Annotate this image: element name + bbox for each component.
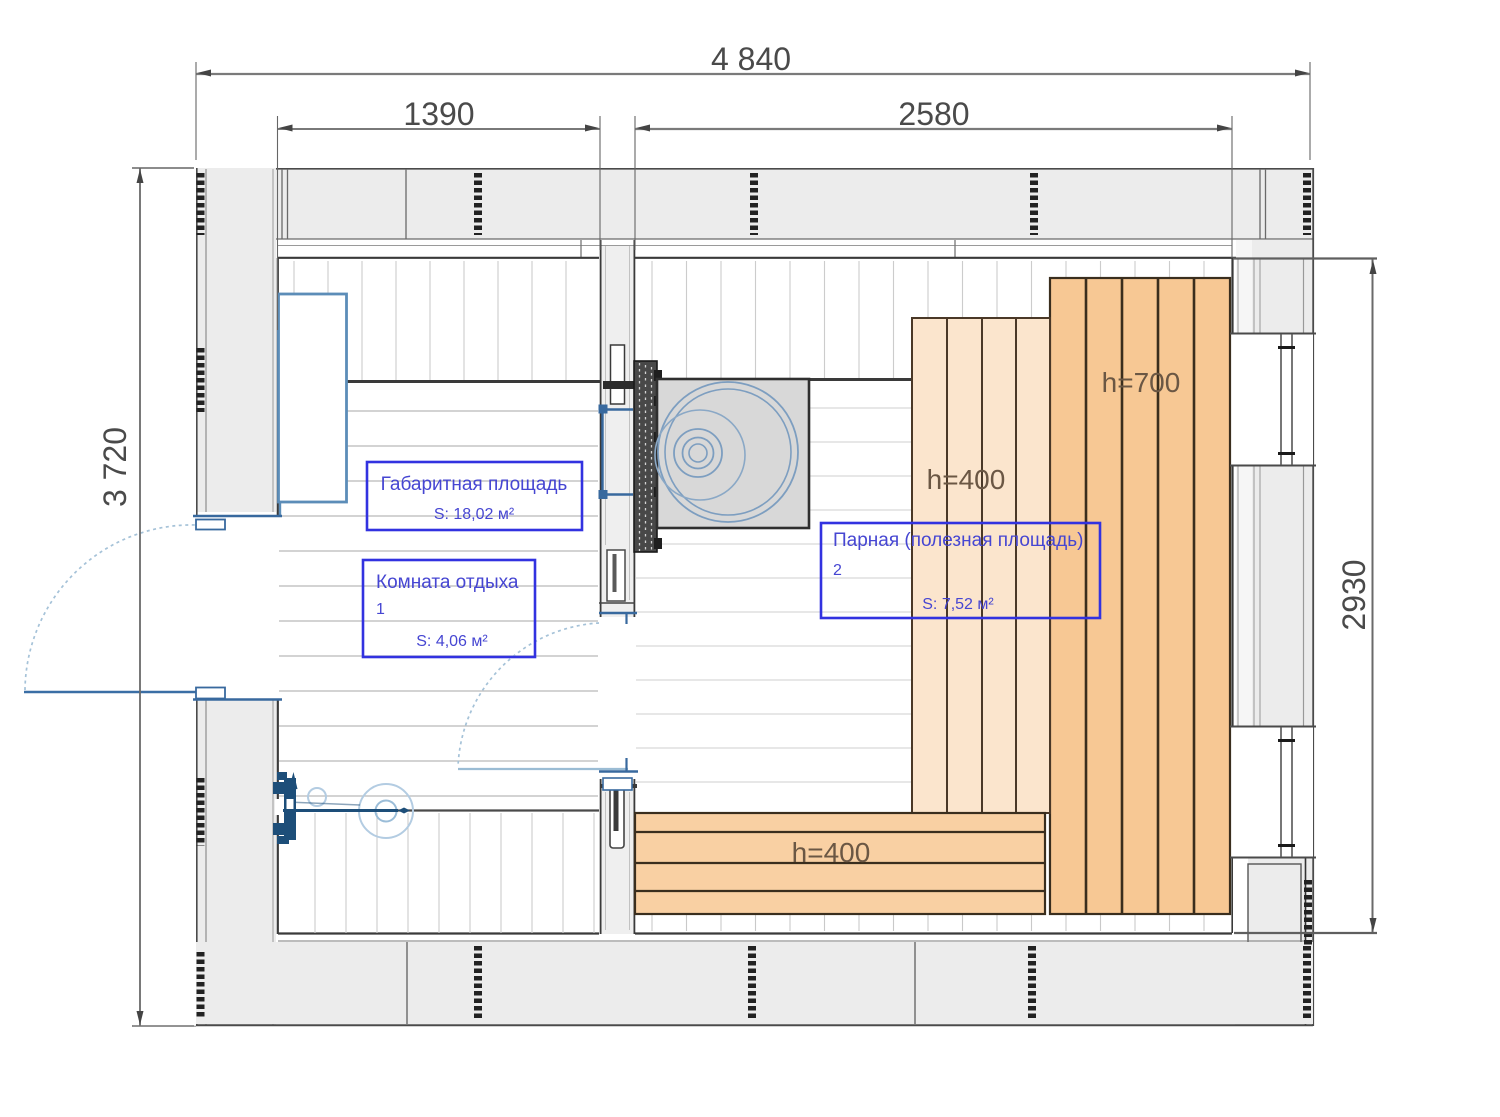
svg-text:2930: 2930: [1336, 559, 1372, 630]
svg-text:h=400: h=400: [792, 837, 871, 868]
svg-text:2: 2: [833, 562, 842, 579]
svg-text:1390: 1390: [403, 96, 474, 132]
svg-text:S: 18,02 м²: S: 18,02 м²: [434, 506, 515, 523]
svg-text:1: 1: [376, 601, 385, 618]
svg-text:Комната отдыха: Комната отдыха: [376, 572, 519, 593]
svg-text:2580: 2580: [898, 96, 969, 132]
svg-text:S: 7,52 м²: S: 7,52 м²: [922, 596, 994, 613]
svg-text:h=400: h=400: [927, 464, 1006, 495]
svg-text:3 720: 3 720: [97, 427, 133, 507]
svg-text:4 840: 4 840: [711, 41, 791, 77]
svg-text:Парная (полезная площадь): Парная (полезная площадь): [833, 530, 1083, 551]
svg-text:S: 4,06 м²: S: 4,06 м²: [416, 633, 488, 650]
svg-text:Габаритная площадь: Габаритная площадь: [381, 474, 568, 495]
svg-text:h=700: h=700: [1102, 367, 1181, 398]
